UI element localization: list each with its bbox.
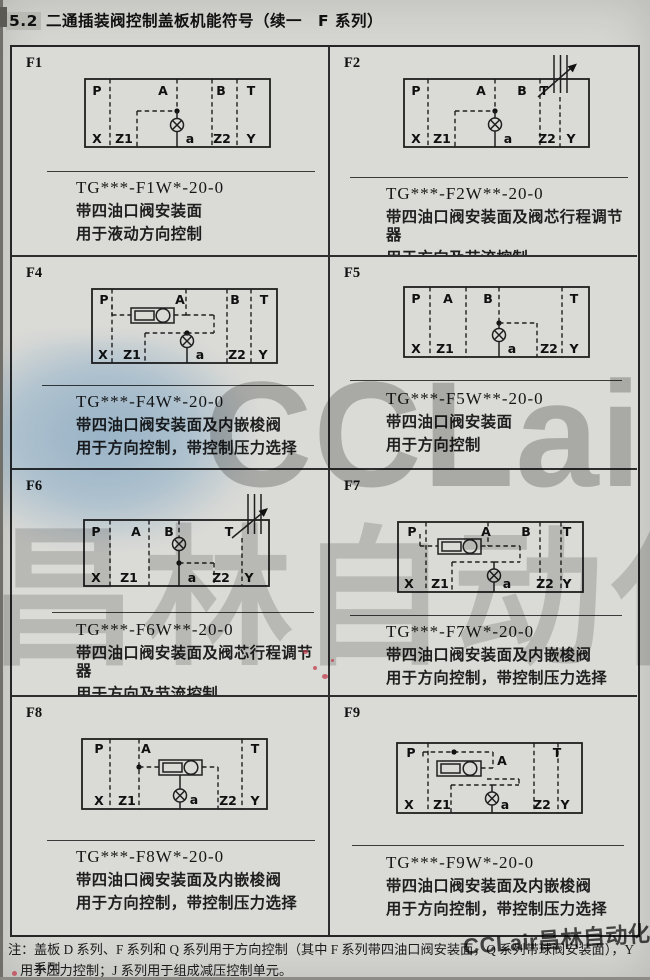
description-line-2: 用于方向控制，带控制压力选择 [386, 670, 607, 688]
description-line-1: 带四油口阀安装面及阀芯行程调节器 [76, 645, 328, 681]
port-label: X [411, 341, 421, 356]
port-label: Y [245, 131, 256, 146]
description-line-1: 带四油口阀安装面 [386, 414, 544, 432]
divider-line [42, 385, 314, 386]
port-label: A [141, 741, 151, 756]
port-label: T [570, 291, 579, 306]
port-label: Z2 [533, 797, 551, 812]
port-label: Z1 [115, 131, 133, 146]
port-label: Z2 [212, 570, 230, 585]
port-label: T [260, 292, 269, 307]
footnote-line-2: 用于压力控制；J 系列用于组成减压控制单元。 [20, 960, 620, 979]
divider-line [352, 845, 624, 846]
port-label: X [404, 797, 414, 812]
cell-F6: F6 [12, 470, 330, 697]
port-label: Z2 [213, 131, 231, 146]
port-label: P [406, 745, 415, 760]
port-label: P [94, 741, 103, 756]
description-line-1: 带四油口阀安装面及内嵌梭阀 [386, 878, 607, 896]
f2-schematic: P A B T X Z1 a Z2 Y [394, 49, 604, 153]
f7-schematic: P A B T X Z1 a Z2 Y [388, 500, 598, 600]
valve-a-icon [486, 792, 499, 805]
divider-line [350, 177, 628, 178]
red-pen-mark [12, 971, 17, 976]
port-label: Z1 [431, 576, 449, 591]
description-line-2: 用于方向及节流控制 [386, 250, 637, 257]
scanned-catalog-page: 5.2二通插装阀控制盖板机能符号（续一 F 系列） F1 [0, 0, 650, 980]
port-label: Y [559, 797, 570, 812]
cell-F2: F2 [330, 47, 637, 257]
port-label: a [504, 131, 512, 146]
port-label: a [501, 797, 509, 812]
cell-id-label: F9 [344, 705, 360, 722]
symbol-table: F1 P A B T X [10, 45, 640, 937]
port-label: Y [565, 131, 576, 146]
port-label: a [503, 576, 511, 591]
description-line-1: 带四油口阀安装面及内嵌梭阀 [76, 417, 297, 435]
port-label: Z1 [436, 341, 454, 356]
port-label: B [517, 83, 527, 98]
description-line-2: 用于液动方向控制 [76, 226, 224, 244]
valve-a-icon [173, 538, 186, 551]
cell-F9: F9 [330, 697, 637, 935]
port-label: T [540, 83, 549, 98]
description-line-2: 用于方向及节流控制 [76, 686, 328, 697]
divider-line [52, 612, 314, 613]
shuttle-valve-icon [131, 308, 174, 323]
cell-id-label: F4 [26, 265, 42, 282]
description-line-1: 带四油口阀安装面及内嵌梭阀 [386, 647, 607, 665]
cell-F4: F4 [12, 257, 330, 470]
port-label: A [131, 524, 141, 539]
cell-id-label: F2 [344, 55, 360, 72]
port-label: P [92, 83, 101, 98]
description-line-2: 用于方向控制，带控制压力选择 [386, 901, 607, 919]
page-title: 5.2二通插装阀控制盖板机能符号（续一 F 系列） [6, 9, 383, 31]
port-label: A [443, 291, 453, 306]
port-label: B [216, 83, 226, 98]
cell-F1: F1 P A B T X [12, 47, 330, 257]
f1-schematic: P A B T X Z1 a Z2 Y [75, 55, 285, 155]
port-label: a [186, 131, 194, 146]
junction-dot [451, 749, 456, 754]
port-label: X [92, 131, 102, 146]
section-title-text: 二通插装阀控制盖板机能符号（续一 F 系列） [46, 12, 383, 30]
shuttle-valve-icon [438, 539, 481, 554]
cell-id-label: F8 [26, 705, 42, 722]
port-label: A [497, 753, 507, 768]
port-label: B [483, 291, 493, 306]
description-line-2: 用于方向控制，带控制压力选择 [76, 895, 297, 913]
model-code: TG***-F7W*-20-0 [386, 622, 607, 642]
valve-a-icon [171, 119, 184, 132]
port-label: T [225, 524, 234, 539]
port-label: P [91, 524, 100, 539]
model-code: TG***-F4W*-20-0 [76, 392, 297, 412]
port-label: Z2 [538, 131, 556, 146]
model-code: TG***-F6W**-20-0 [76, 620, 328, 640]
port-label: Z1 [118, 793, 136, 808]
red-pen-mark [303, 650, 308, 654]
port-label: Y [257, 347, 268, 362]
port-label: Z1 [120, 570, 138, 585]
cell-id-label: F1 [26, 55, 42, 72]
port-label: a [188, 570, 196, 585]
divider-line [350, 380, 622, 381]
port-label: X [98, 347, 108, 362]
valve-a-icon [174, 789, 187, 802]
description-line-1: 带四油口阀安装面及内嵌梭阀 [76, 872, 297, 890]
description-line-2: 用于方向控制 [386, 437, 544, 455]
port-label: P [99, 292, 108, 307]
port-label: Y [561, 576, 572, 591]
port-label: Z1 [433, 131, 451, 146]
f6-schematic: P A B T X Z1 a Z2 Y [74, 486, 284, 590]
port-label: a [508, 341, 516, 356]
shuttle-valve-icon [437, 761, 481, 776]
port-label: T [251, 741, 260, 756]
model-code: TG***-F8W*-20-0 [76, 847, 297, 867]
model-code: TG***-F1W*-20-0 [76, 178, 224, 198]
footnote-label: 注： [8, 939, 34, 958]
cell-id-label: F7 [344, 478, 360, 495]
port-label: B [521, 524, 531, 539]
port-label: Z1 [123, 347, 141, 362]
port-label: T [247, 83, 256, 98]
red-pen-mark [322, 674, 328, 679]
shuttle-valve-icon [159, 760, 202, 775]
port-label: X [404, 576, 414, 591]
port-label: T [553, 745, 562, 760]
port-label: X [94, 793, 104, 808]
port-label: Z2 [228, 347, 246, 362]
cell-F7: F7 [330, 470, 637, 697]
f5-schematic: P A B T X Z1 a Z2 Y [394, 265, 604, 365]
port-label: B [230, 292, 240, 307]
cell-F8: F8 [12, 697, 330, 935]
description-line-2: 用于方向控制，带控制压力选择 [76, 440, 297, 458]
divider-line [47, 171, 315, 172]
f9-schematic: P A T X Z1 a Z2 Y [387, 721, 597, 821]
port-label: P [411, 291, 420, 306]
description-line-1: 带四油口阀安装面及阀芯行程调节器 [386, 209, 637, 245]
cell-id-label: F5 [344, 265, 360, 282]
port-label: P [411, 83, 420, 98]
divider-line [47, 840, 315, 841]
port-label: Z2 [540, 341, 558, 356]
stroke-adjuster-icon [232, 494, 268, 538]
port-label: A [481, 524, 491, 539]
port-label: X [411, 131, 421, 146]
cell-F5: F5 P A B T X [330, 257, 637, 470]
port-label: A [476, 83, 486, 98]
port-label: a [196, 347, 204, 362]
port-label: a [190, 792, 198, 807]
cell-id-label: F6 [26, 478, 42, 495]
port-label: Z2 [219, 793, 237, 808]
red-pen-mark [331, 659, 334, 662]
scan-edge-left [0, 0, 3, 980]
port-label: Z2 [536, 576, 554, 591]
port-label: Y [249, 793, 260, 808]
red-pen-mark [313, 666, 317, 670]
port-label: A [158, 83, 168, 98]
port-label: A [175, 292, 185, 307]
section-number: 5.2 [6, 12, 41, 30]
valve-a-icon [181, 335, 194, 348]
port-label: Y [568, 341, 579, 356]
port-label: X [91, 570, 101, 585]
f4-schematic: P A B T X Z1 a Z2 Y [82, 271, 292, 371]
valve-a-icon [489, 118, 502, 131]
description-line-1: 带四油口阀安装面 [76, 203, 224, 221]
model-code: TG***-F2W**-20-0 [386, 184, 637, 204]
port-label: T [563, 524, 572, 539]
port-label: P [407, 524, 416, 539]
model-code: TG***-F9W*-20-0 [386, 853, 607, 873]
f8-schematic: P A T X Z1 a Z2 Y [72, 717, 282, 817]
port-label: Y [243, 570, 254, 585]
model-code: TG***-F5W**-20-0 [386, 389, 544, 409]
valve-a-icon [488, 569, 501, 582]
scan-smudge [0, 7, 7, 27]
valve-a-icon [493, 329, 506, 342]
divider-line [350, 615, 622, 616]
port-label: B [164, 524, 174, 539]
port-label: Z1 [433, 797, 451, 812]
